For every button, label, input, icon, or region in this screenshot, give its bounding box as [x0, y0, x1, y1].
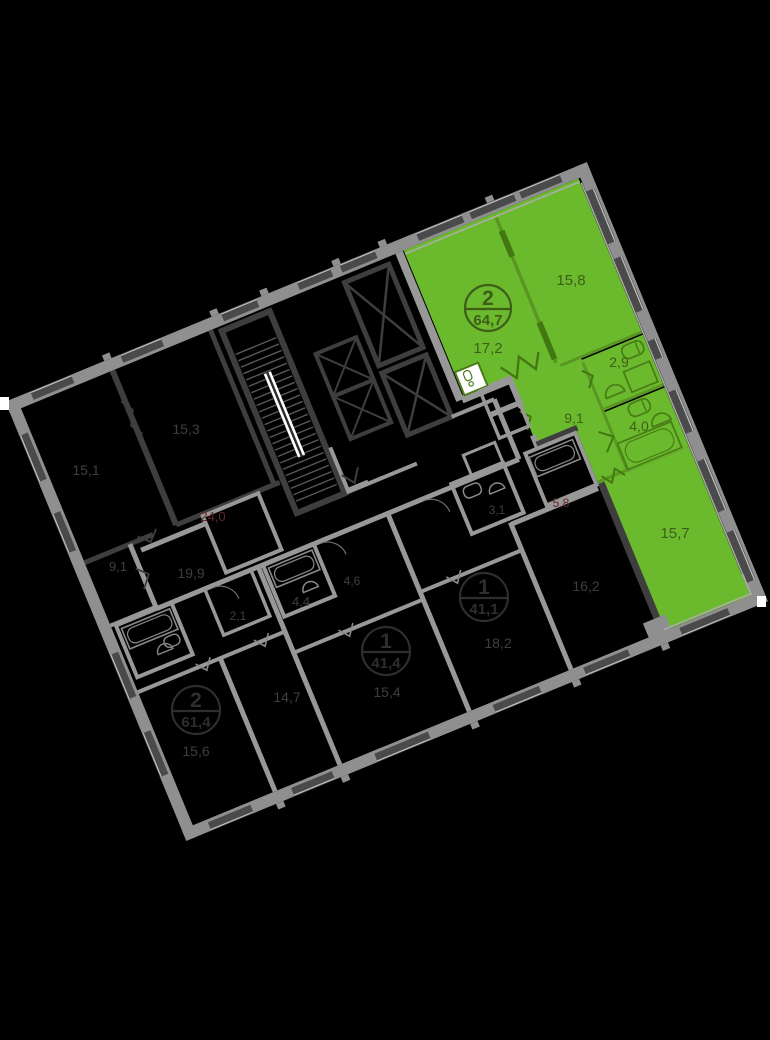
- svg-text:1: 1: [478, 576, 490, 599]
- svg-text:41,4: 41,4: [371, 655, 401, 672]
- svg-text:41,1: 41,1: [469, 601, 498, 618]
- svg-text:14,7: 14,7: [273, 689, 300, 705]
- svg-text:15,8: 15,8: [556, 272, 585, 289]
- svg-text:1: 1: [380, 630, 392, 653]
- svg-text:16,2: 16,2: [572, 578, 599, 594]
- svg-text:15,1: 15,1: [72, 462, 99, 478]
- svg-text:15,6: 15,6: [182, 743, 209, 759]
- svg-text:4,4: 4,4: [292, 594, 310, 609]
- svg-text:5,8: 5,8: [553, 496, 570, 510]
- svg-text:9,1: 9,1: [109, 559, 127, 574]
- svg-text:2,9: 2,9: [609, 354, 629, 370]
- svg-text:2: 2: [190, 689, 202, 712]
- svg-text:24,0: 24,0: [200, 509, 225, 524]
- svg-text:15,3: 15,3: [172, 421, 199, 437]
- svg-text:15,7: 15,7: [660, 525, 689, 542]
- svg-text:61,4: 61,4: [181, 714, 211, 731]
- svg-text:19,9: 19,9: [177, 565, 204, 581]
- svg-text:18,2: 18,2: [484, 635, 511, 651]
- svg-text:2,1: 2,1: [230, 609, 247, 623]
- svg-text:2: 2: [482, 287, 494, 310]
- svg-text:4,6: 4,6: [344, 574, 361, 588]
- svg-text:15,4: 15,4: [373, 684, 400, 700]
- svg-text:64,7: 64,7: [473, 312, 502, 329]
- svg-text:9,1: 9,1: [564, 410, 584, 426]
- svg-text:3,1: 3,1: [489, 503, 506, 517]
- svg-text:4,0: 4,0: [629, 418, 649, 434]
- svg-text:17,2: 17,2: [473, 340, 502, 357]
